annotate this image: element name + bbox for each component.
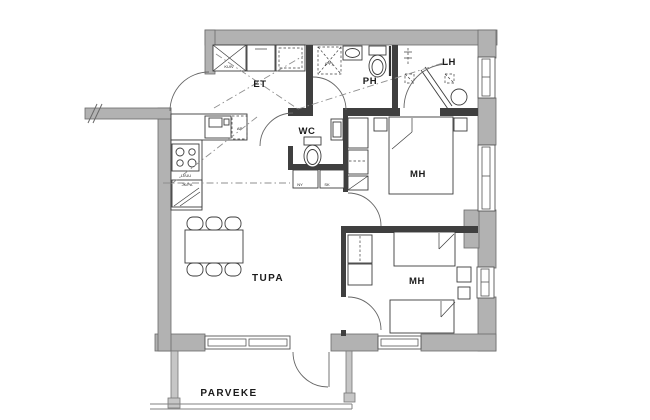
entry-closets: KUIV — [213, 45, 305, 71]
double-bed — [389, 117, 453, 194]
bedside-table — [457, 267, 471, 282]
room-label-tupa: TUPA — [252, 273, 284, 284]
room-label-et: ET — [253, 79, 266, 90]
toilet-bowl — [369, 55, 386, 77]
toilet-tank — [369, 46, 386, 55]
room-label-ph: PH — [363, 76, 377, 87]
single-bed — [390, 300, 454, 333]
window-mh2-bottom — [378, 336, 421, 349]
wall-et-ph — [306, 45, 313, 114]
chair — [206, 217, 222, 230]
dining-table — [185, 230, 243, 263]
balcony-post-left — [171, 351, 178, 401]
window-lh — [478, 57, 495, 98]
wall-ph-lh — [392, 45, 398, 108]
floor-plan-drawing: KUIV (PP) NY — [0, 0, 650, 420]
wardrobe — [348, 118, 368, 148]
toilet-tank — [304, 137, 321, 145]
bedside-table — [458, 287, 470, 299]
wall-top — [205, 30, 497, 45]
room-label-lh: LH — [442, 57, 456, 68]
wall-bottom-2 — [331, 334, 378, 351]
window-mh2-right — [477, 267, 494, 298]
nightstand — [454, 118, 467, 131]
wall-tupa-mh2 — [341, 233, 346, 297]
bedroom1-furniture — [348, 117, 467, 194]
closet — [276, 45, 305, 71]
balcony-post-right — [346, 351, 352, 395]
chair — [225, 263, 241, 276]
room-label-mh1: MH — [410, 169, 426, 180]
chair — [206, 263, 222, 276]
wall-left — [158, 108, 171, 351]
window-tupa — [205, 336, 290, 349]
hall-cabinet-label: SK — [324, 182, 330, 187]
room-label-parveke: PARVEKE — [200, 388, 257, 399]
balcony-foot-right — [344, 393, 355, 402]
dining-set — [185, 217, 243, 276]
wall-ph-mh1 — [346, 108, 400, 116]
washing-machine-label: (PP) — [325, 61, 334, 66]
balcony-foot-left — [168, 398, 180, 408]
nightstand — [374, 118, 387, 131]
wall-right-3 — [478, 210, 496, 268]
floor-plan: KUIV (PP) NY — [0, 0, 650, 420]
chair — [187, 217, 203, 230]
wardrobe — [348, 264, 372, 285]
room-label-wc: WC — [298, 126, 315, 137]
wall-lh-mh1 — [440, 108, 478, 116]
wardrobe — [348, 150, 368, 174]
single-bed — [394, 232, 455, 266]
hall-cabinet-label: NY — [297, 182, 303, 187]
wall-tupa-mh2-stub — [341, 330, 346, 336]
stove-label: LI/UU — [181, 173, 191, 178]
toilet-bowl — [304, 145, 321, 167]
chair — [225, 217, 241, 230]
chair — [187, 263, 203, 276]
room-label-mh2: MH — [409, 276, 425, 287]
wall-right-2 — [478, 98, 496, 145]
wall-right-1 — [478, 30, 496, 58]
wall-bottom-3 — [421, 334, 496, 351]
window-mh1 — [478, 145, 495, 211]
